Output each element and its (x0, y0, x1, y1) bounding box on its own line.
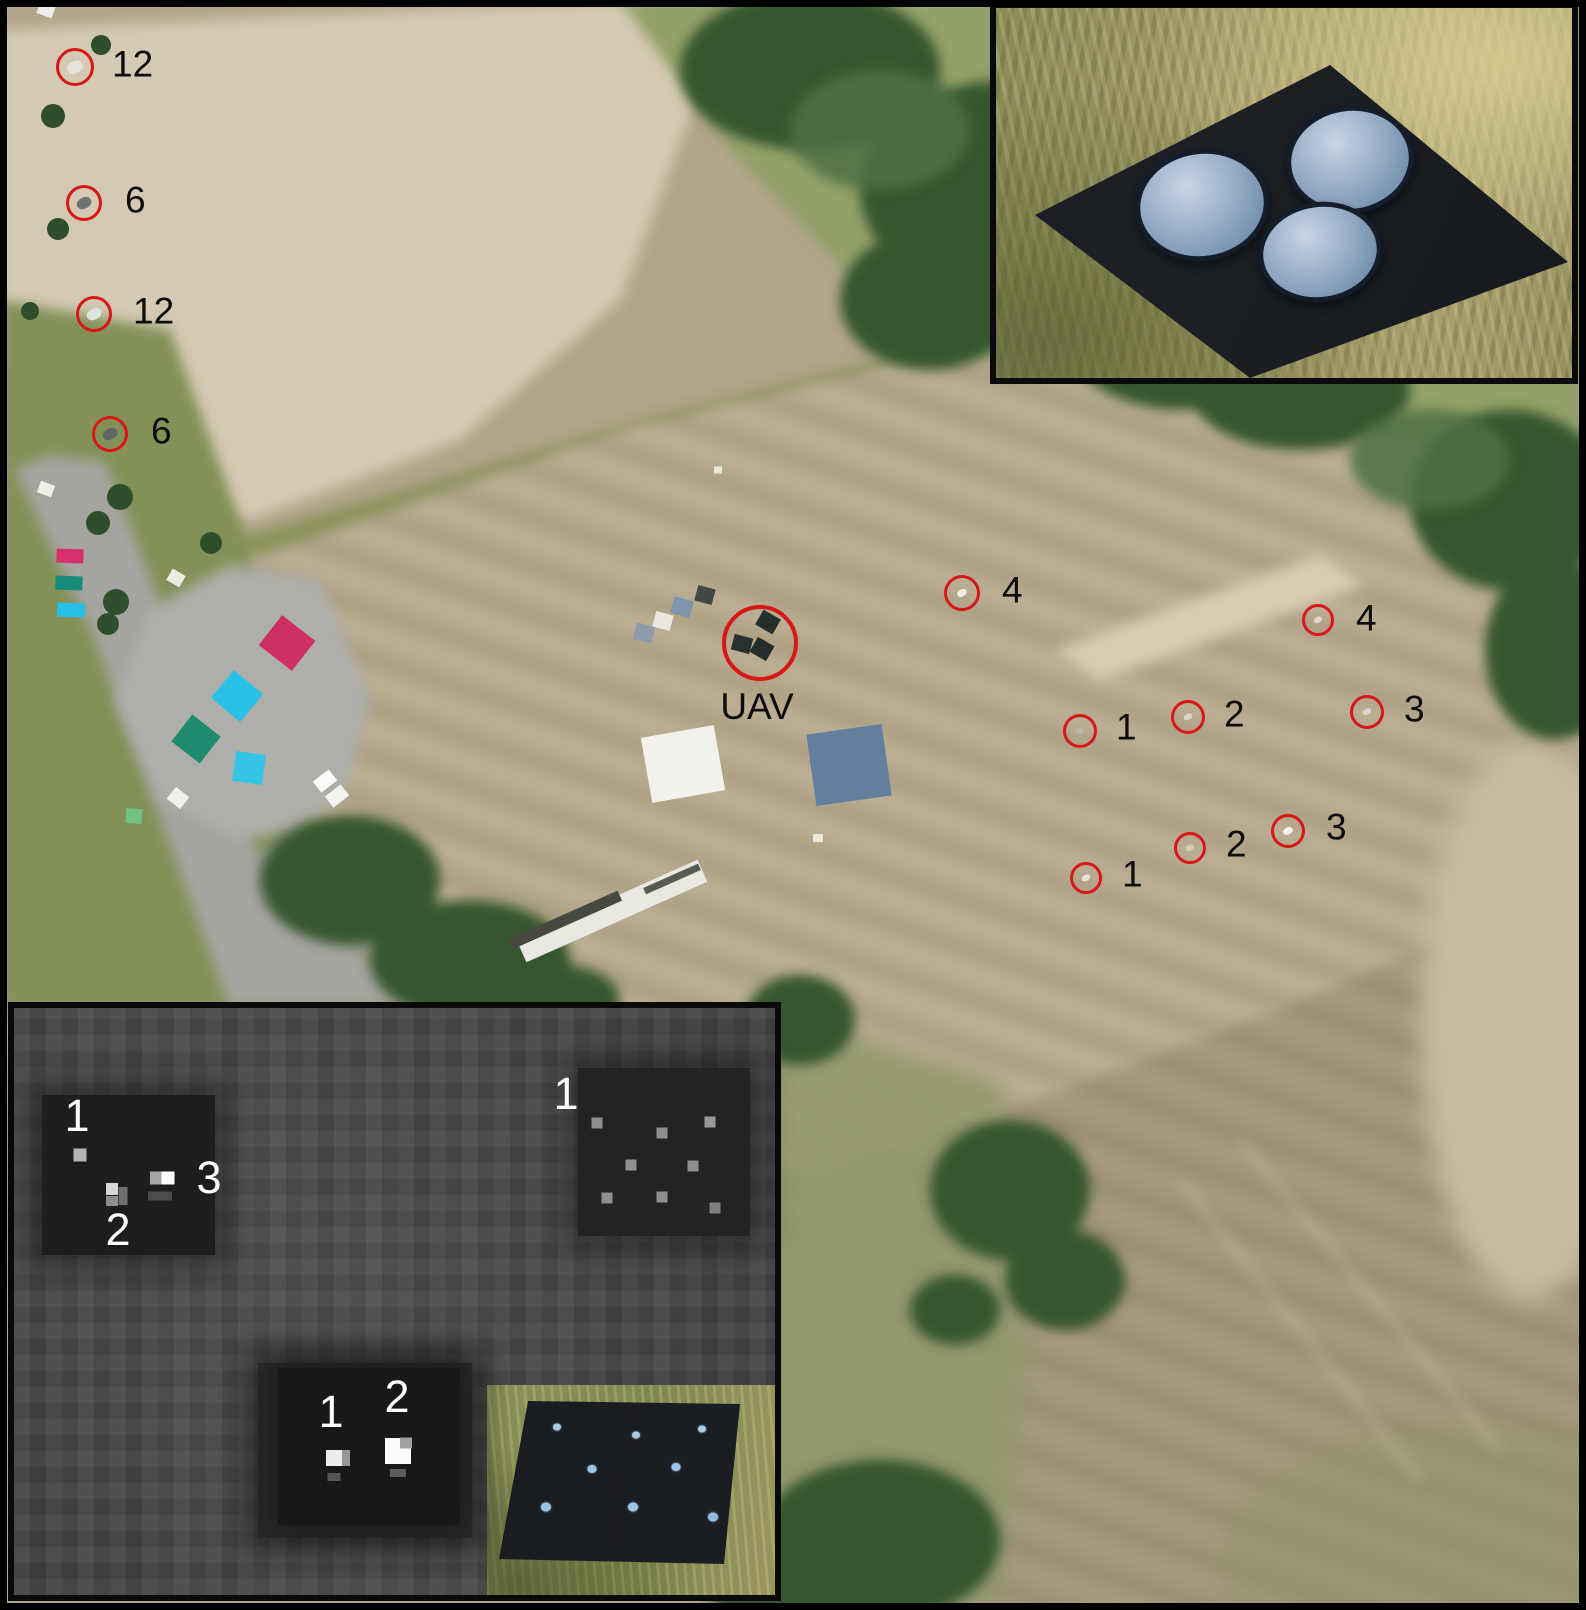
mirror-discs (0, 0, 1586, 1610)
mirror-disc-left (1128, 140, 1276, 270)
figure-canvas: 12 6 12 6 4 4 (0, 0, 1586, 1610)
mirror-disc-top-right (1279, 98, 1421, 223)
